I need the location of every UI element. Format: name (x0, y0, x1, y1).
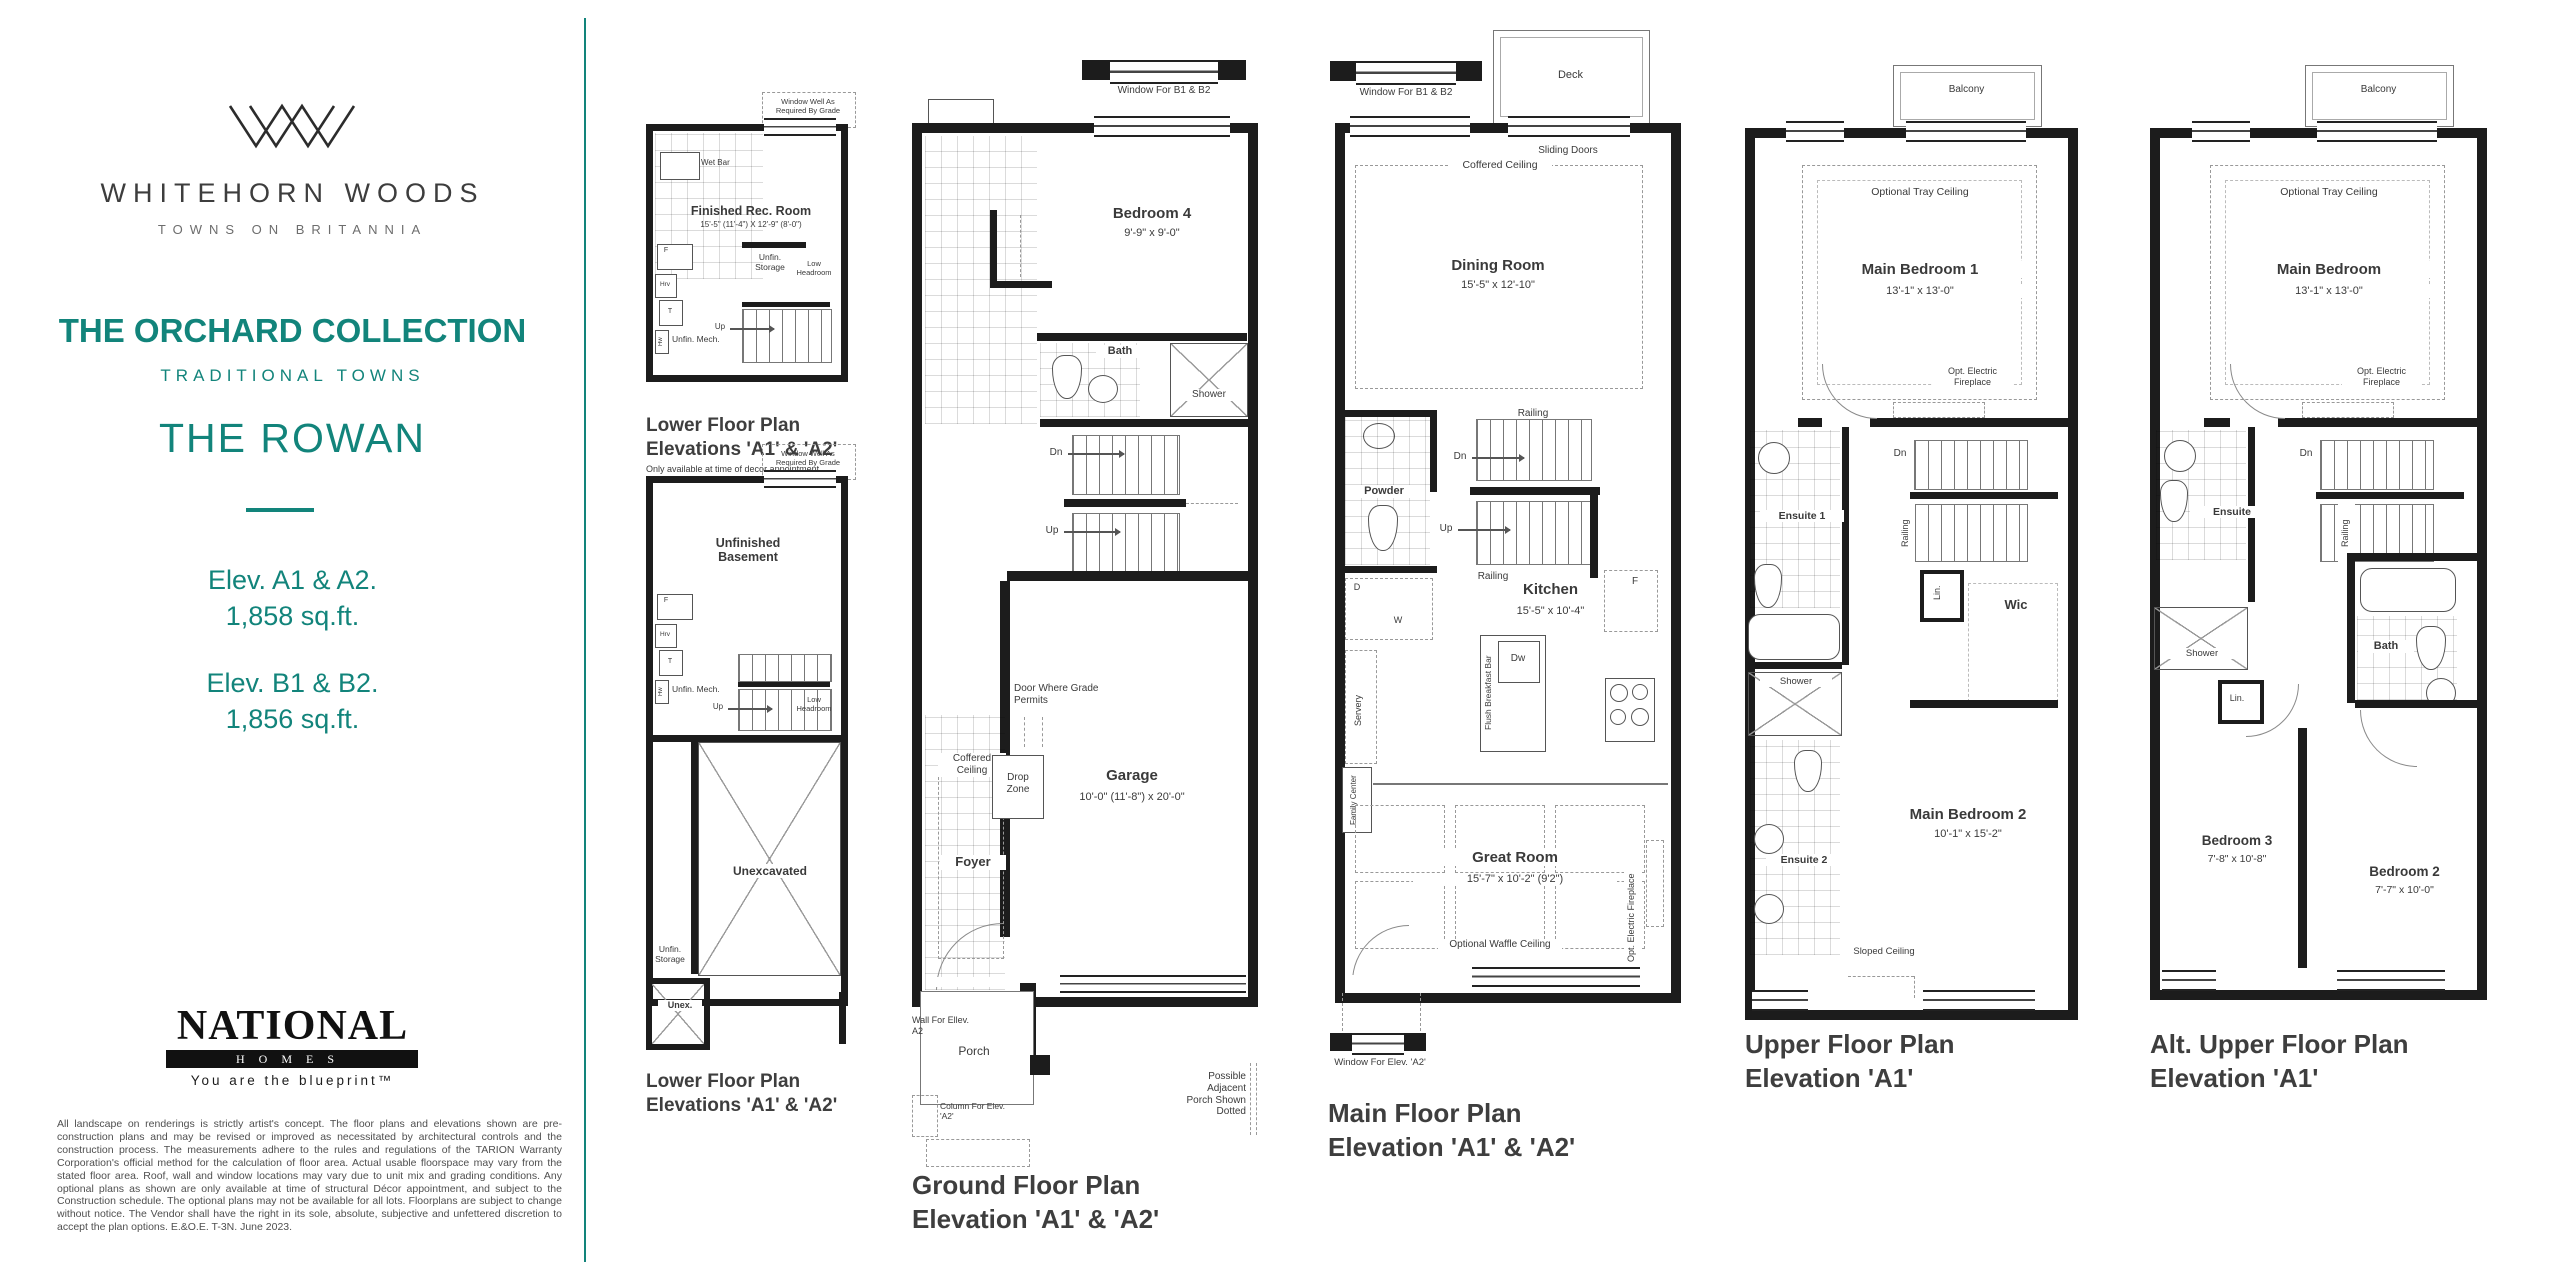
plan-title: Main Floor Plan Elevation 'A1' & 'A2' (1328, 1097, 1575, 1165)
hw-label: Hw (658, 333, 667, 351)
wall-segment (1456, 61, 1482, 81)
room-label: Bedroom 2 (2332, 864, 2477, 880)
fridge-label: F (1628, 576, 1642, 588)
window (2337, 970, 2445, 991)
wet-bar-counter (660, 152, 700, 180)
whitehorn-logo-icon (222, 96, 362, 158)
furnace-box: F (657, 244, 693, 270)
coffered-label: Coffered Ceiling (1448, 159, 1552, 171)
breakfast-bar-label: Flush Breakfast Bar (1483, 640, 1494, 745)
washer-label: W (1390, 615, 1406, 626)
dn-label: Dn (1890, 448, 1910, 460)
window-well-label: Window Well As Required By Grade (767, 450, 849, 468)
fireplace-label: Opt. Electric Fireplace (2342, 366, 2421, 387)
stairs (742, 309, 832, 363)
furnace-box: F (657, 594, 693, 620)
balcony-label: Balcony (2305, 84, 2452, 96)
up-arrow-icon (730, 328, 774, 330)
plan-title-line2: Elevation 'A1' & 'A2' (912, 1203, 1159, 1237)
door-dashed (1024, 717, 1025, 747)
coffered-ceiling-outline (1355, 165, 1643, 389)
porch-label: Porch (938, 1045, 1010, 1059)
balcony-inner-outline (2312, 72, 2447, 120)
up-label: Up (1042, 525, 1062, 537)
plan-title-line2: Elevation 'A1' & 'A2' (1328, 1131, 1575, 1165)
tray-label: Optional Tray Ceiling (1833, 186, 2007, 198)
tank-box: T (659, 650, 683, 676)
accent-rule (246, 508, 314, 512)
collection-title: THE ORCHARD COLLECTION (0, 312, 585, 350)
wall-a2-label: Wall For Ellev. A2 (912, 1015, 970, 1036)
room-dims: 7'-7" x 10'-0" (2332, 884, 2477, 896)
plan-title-line2: Elevation 'A1' (2150, 1062, 2409, 1096)
sink (1088, 375, 1118, 403)
room-dims: 15'-7" x 10'-2" (9'2") (1413, 873, 1617, 886)
plan-title-line1: Main Floor Plan (1328, 1097, 1575, 1131)
plan-title-line1: Ground Floor Plan (912, 1169, 1159, 1203)
burner-icon (1632, 684, 1648, 700)
unexcavated-small-area (646, 978, 710, 1050)
closet-door-dashed (1020, 215, 1021, 277)
hrv-label: Hrv (657, 631, 673, 639)
window (1923, 990, 2035, 1011)
hw-label: Hw (658, 683, 667, 701)
tray-label: Optional Tray Ceiling (2242, 186, 2416, 198)
plan-upper-floor: Balcony Optional Tray Ceiling Main Bedro… (1738, 28, 2093, 1158)
stair-landing-wall (742, 302, 830, 307)
plan-lower-basement: Window Well As Required By Grade Unfinis… (646, 444, 861, 1109)
model-name: THE ROWAN (0, 415, 585, 462)
unfin-storage-label: Unfin. Storage (744, 252, 796, 272)
dn-label: Dn (2296, 448, 2316, 460)
burner-icon (1610, 709, 1626, 725)
collection-subtitle: TRADITIONAL TOWNS (0, 366, 585, 386)
legal-disclaimer: All landscape on renderings is strictly … (57, 1118, 562, 1234)
wall-segment (1430, 410, 1437, 492)
stairs (2320, 440, 2434, 490)
ensuite2-label: Ensuite 2 (1766, 854, 1842, 866)
door-grade-label: Door Where Grade Permits (1014, 683, 1108, 707)
ensuite1-label: Ensuite 1 (1760, 510, 1844, 522)
wall-segment (2347, 553, 2479, 561)
wall-segment (1330, 1033, 1352, 1051)
wall-segment (691, 742, 698, 974)
up-label: Up (1436, 523, 1456, 535)
waffle-label: Optional Waffle Ceiling (1438, 939, 1562, 951)
door-dashed (1042, 717, 1043, 747)
balcony-door (1906, 121, 2026, 142)
stair-landing-wall (1910, 492, 2058, 499)
plan-title: Ground Floor Plan Elevation 'A1' & 'A2' (912, 1169, 1159, 1237)
porch-pier (1030, 1055, 1050, 1075)
plan-title-line1: Alt. Upper Floor Plan (2150, 1028, 2409, 1062)
drop-zone-box: Drop Zone (992, 755, 1044, 819)
fireplace-outline (1893, 402, 1985, 418)
unfin-mech-label: Unfin. Mech. (672, 334, 720, 344)
closet-wall (990, 281, 1052, 288)
bath-label: Bath (2358, 640, 2414, 653)
column-a2-label: Column For Elev. 'A2' (940, 1101, 1006, 1121)
room-label: Main Bedroom 2 (1878, 806, 2058, 823)
fireplace-label: Opt. Electric Fireplace (1624, 863, 1642, 973)
unexcavated-label: Unexcavated (708, 864, 832, 878)
hrv-box: Hrv (655, 624, 677, 648)
fireplace-outline (2302, 402, 2394, 418)
linen-label: Lin. (1932, 578, 1944, 608)
window-b1b2-label: Window For B1 & B2 (1330, 87, 1482, 99)
adjacent-porch-label: Possible Adjacent Porch Shown Dotted (1180, 1071, 1246, 1118)
fireplace-label: Opt. Electric Fireplace (1933, 366, 2012, 387)
stairs (1476, 501, 1592, 565)
up-label: Up (712, 322, 728, 331)
room-dims: 13'-1" x 13'-0" (1818, 285, 2022, 298)
up-label: Up (710, 702, 726, 711)
balcony-label: Balcony (1893, 84, 2040, 96)
room-dims: 13'-1" x 13'-0" (2227, 285, 2431, 298)
door-opening (2230, 418, 2278, 427)
unfin-mech-label: Unfin. Mech. (672, 684, 720, 694)
furnace-label: F (661, 247, 671, 255)
brand-name: WHITEHORN WOODS (0, 178, 585, 209)
balcony-door (2317, 121, 2437, 142)
deck-label: Deck (1493, 69, 1648, 82)
plan-title: Upper Floor Plan Elevation 'A1' (1745, 1028, 1954, 1096)
window-a2-label: Window For Elev. 'A2' (1334, 1057, 1426, 1068)
window (1472, 967, 1640, 987)
adjacent-porch-dashed (1256, 1063, 1257, 1135)
wall-segment (1404, 1033, 1426, 1051)
up-arrow-icon (1458, 529, 1510, 531)
door-opening (1822, 418, 1870, 427)
elevation-b-label: Elev. B1 & B2. (0, 665, 585, 701)
window (764, 118, 836, 136)
stairs (1914, 504, 2028, 562)
plan-title-line2: Elevation 'A1' (1745, 1062, 1954, 1096)
room-dims: 9'-9" x 9'-0" (1062, 227, 1242, 240)
plan-title-line1: Upper Floor Plan (1745, 1028, 1954, 1062)
wall-segment (2355, 700, 2479, 708)
burner-icon (1631, 708, 1649, 726)
wall-segment (1040, 419, 1258, 427)
dryer-label: D (1350, 582, 1364, 593)
stair-landing-wall (1470, 487, 1600, 495)
shower-stall (1170, 343, 1248, 417)
sink (1754, 824, 1784, 854)
low-headroom-label: Low Headroom (792, 260, 836, 278)
stairs (1476, 419, 1592, 481)
window (1352, 1033, 1404, 1055)
wall-segment (1748, 662, 1842, 669)
room-label: Dining Room (1418, 257, 1578, 274)
room-divider-line (1373, 783, 1668, 785)
brochure-sheet: WHITEHORN WOODS TOWNS ON BRITANNIA THE O… (0, 0, 2560, 1280)
wic-label: Wic (1986, 598, 2046, 613)
bath-label: Bath (1096, 345, 1144, 358)
furnace-label: F (661, 597, 671, 605)
shower-label: Shower (1760, 676, 1832, 687)
stair-landing-wall (2316, 492, 2464, 499)
stairs (1072, 435, 1180, 495)
sloped-ceiling-dashed (1914, 976, 1915, 998)
linen-closet: Lin. (1920, 570, 1964, 622)
window-well-label: Window Well As Required By Grade (767, 98, 849, 116)
unex-label: Unex. (658, 1000, 702, 1011)
wall-segment (1590, 493, 1598, 578)
room-label: Unfinished Basement (692, 536, 804, 565)
tile-floor (925, 136, 1037, 424)
elevation-a-spec: Elev. A1 & A2. 1,858 sq.ft. (0, 562, 585, 635)
elevation-b-spec: Elev. B1 & B2. 1,856 sq.ft. (0, 665, 585, 738)
stairs (1914, 440, 2028, 490)
garage-door-opening (1060, 975, 1246, 993)
shower-label: Shower (2164, 648, 2240, 659)
window-a2-dashed (1420, 993, 1421, 1031)
ensuite-label: Ensuite (2190, 506, 2274, 518)
dishwasher-label: Dw (1504, 653, 1532, 665)
room-dims: 15'-5" (11'-4") X 12'-9" (8'-0") (666, 220, 836, 229)
room-label: Garage (1032, 767, 1232, 784)
dn-label: Dn (1450, 451, 1470, 463)
window (1752, 990, 1808, 1011)
stairs (738, 654, 832, 682)
sink (2164, 440, 2196, 472)
fireplace-outline (1646, 840, 1664, 927)
plan-alt-upper-floor: Balcony Optional Tray Ceiling Main Bedro… (2142, 28, 2502, 1158)
shower-label: Shower (1174, 389, 1244, 401)
low-headroom-label: Low Headroom (792, 696, 836, 714)
plan-lower-rec-room: Window Well As Required By Grade Wet Bar… (646, 92, 861, 477)
window (2162, 970, 2216, 991)
room-label: Bedroom 3 (2167, 833, 2307, 849)
foyer-label: Foyer (940, 855, 1006, 870)
window (2192, 121, 2250, 142)
wall-segment (2347, 553, 2355, 703)
room-label: Great Room (1423, 849, 1607, 866)
powder-label: Powder (1346, 485, 1422, 498)
builder-logo: NATIONAL (0, 1002, 585, 1050)
room-dims: 10'-0" (11'-8") x 20'-0" (1017, 791, 1247, 804)
bathtub (2360, 568, 2456, 612)
up-arrow-icon (1064, 531, 1120, 533)
plan-title-line1: Lower Floor Plan (646, 414, 837, 438)
room-dims: 15'-5" x 12'-10" (1418, 279, 1578, 292)
tank-label: T (663, 658, 677, 666)
landing-dashed (1186, 503, 1238, 504)
elevation-a-label: Elev. A1 & A2. (0, 562, 585, 598)
hrv-box: Hrv (655, 274, 677, 298)
room-label: Finished Rec. Room (676, 204, 826, 218)
wall-segment (1345, 566, 1437, 573)
servery-label: Servery (1353, 675, 1365, 745)
stair-landing-wall (738, 682, 830, 687)
builder-slogan: You are the blueprint™ (0, 1073, 585, 1088)
wall-segment (742, 242, 806, 248)
wall-segment (1007, 571, 1257, 581)
plan-title: Alt. Upper Floor Plan Elevation 'A1' (2150, 1028, 2409, 1096)
elevation-b-area: 1,856 sq.ft. (0, 701, 585, 737)
window (1350, 116, 1470, 137)
plan-title-line2: Elevations 'A1' & 'A2' (646, 1094, 837, 1118)
window (764, 470, 836, 488)
plan-title: Lower Floor Plan Elevations 'A1' & 'A2' (646, 1070, 837, 1118)
shower-stall (2154, 607, 2248, 670)
plan-main-floor: Deck Window For B1 & B2 Sliding Doors Co… (1328, 25, 1698, 1190)
balcony-inner-outline (1900, 72, 2035, 120)
dn-label: Dn (1046, 447, 1066, 459)
elevation-a-area: 1,858 sq.ft. (0, 598, 585, 634)
up-arrow-icon (728, 708, 772, 710)
drop-zone-label: Drop Zone (997, 772, 1039, 796)
wall-segment (1037, 333, 1247, 341)
dn-arrow-icon (1472, 457, 1524, 459)
sloped-ceiling-label: Sloped Ceiling (1848, 946, 1920, 957)
wall-segment (839, 992, 846, 1044)
room-label: Main Bedroom (2227, 261, 2431, 278)
wall-segment (1330, 61, 1356, 81)
sidebar-divider (584, 18, 586, 1262)
closet-wall (990, 210, 997, 288)
hrv-label: Hrv (657, 281, 673, 289)
wall-segment (1842, 427, 1849, 665)
column-outline (912, 1095, 938, 1137)
wall-segment (1218, 60, 1246, 80)
tank-box: T (659, 300, 683, 326)
wall-segment (1345, 410, 1437, 417)
window (1786, 121, 1844, 142)
dn-arrow-icon (1068, 453, 1124, 455)
porch-extension-dashed (926, 1139, 1030, 1167)
window-b1b2-label: Window For B1 & B2 (1082, 85, 1246, 97)
builder-logo-sub: HOMES (166, 1050, 418, 1068)
room-dims: 10'-1" x 15'-2" (1878, 828, 2058, 841)
wall-segment (1082, 60, 1110, 80)
plan-title-line1: Lower Floor Plan (646, 1070, 837, 1094)
tank-label: T (663, 308, 677, 316)
room-label: Bedroom 4 (1062, 205, 1242, 222)
sink (1758, 442, 1790, 474)
stair-landing-wall (1064, 499, 1186, 507)
brand-tagline: TOWNS ON BRITANNIA (0, 222, 585, 237)
door-opening (934, 977, 1004, 987)
railing-label: Railing (1898, 504, 1915, 562)
tray-ceiling-inner (1817, 180, 2022, 385)
sink (1754, 894, 1784, 924)
window-a2-dashed (1342, 993, 1343, 1031)
sliding-doors-label: Sliding Doors (1513, 145, 1623, 157)
hw-box: Hw (655, 330, 669, 354)
room-dims: 7'-8" x 10'-8" (2167, 853, 2307, 865)
wet-bar-label: Wet Bar (701, 158, 745, 167)
tray-ceiling-inner (2225, 180, 2430, 385)
plan-ground-floor: Window For B1 & B2 Bedroom 4 9'-9" x 9'-… (912, 55, 1297, 1265)
room-label: Main Bedroom 1 (1818, 261, 2022, 278)
window (1094, 116, 1230, 137)
bathtub (1748, 614, 1840, 660)
hw-box: Hw (655, 680, 669, 704)
door-opening (1352, 975, 1398, 985)
sidebar: WHITEHORN WOODS TOWNS ON BRITANNIA THE O… (0, 0, 585, 1280)
unexcavated-area (698, 742, 841, 976)
wall-segment (648, 735, 846, 742)
window (1110, 60, 1218, 84)
wall-segment (1910, 700, 2058, 708)
window (1356, 61, 1456, 85)
burner-icon (1610, 684, 1628, 702)
unfin-storage-label: Unfin. Storage (648, 944, 692, 964)
sliding-door (1508, 116, 1630, 137)
sloped-ceiling-dashed (1848, 976, 1914, 977)
stairs (1072, 513, 1180, 573)
adjacent-porch-dashed (1250, 1063, 1251, 1135)
